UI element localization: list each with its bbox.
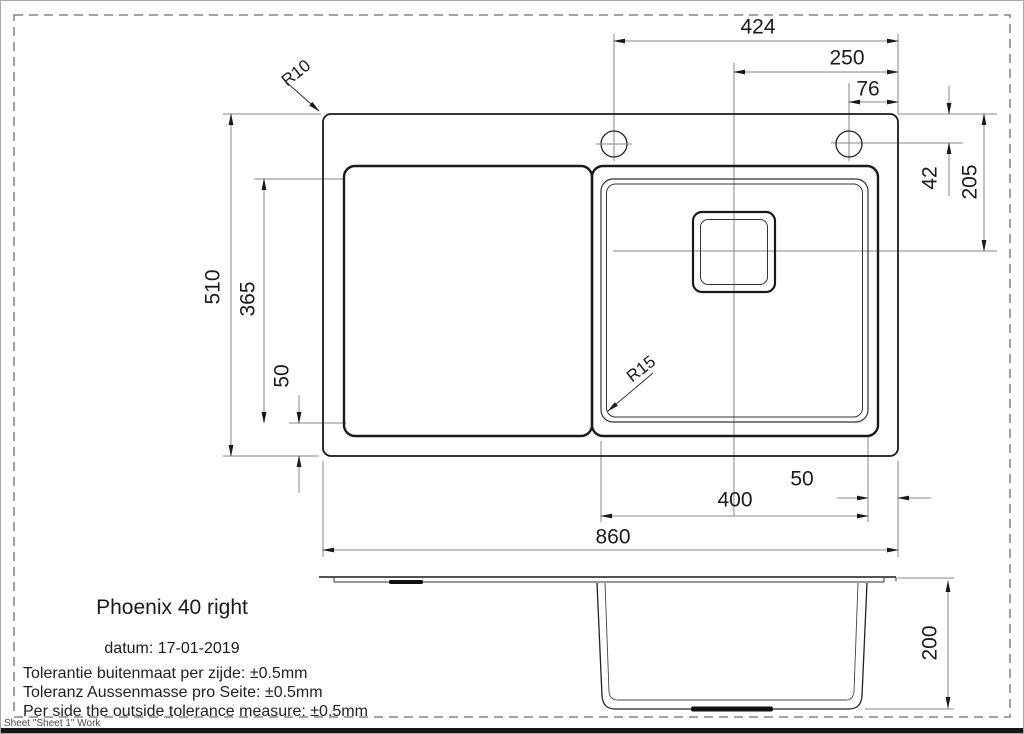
dim-bowl-center-from-right: 250 bbox=[829, 48, 864, 69]
dim-hole-from-right-edge: 76 bbox=[856, 79, 879, 100]
top-view bbox=[323, 114, 898, 456]
tolerance-line-nl: Tolerantie buitenmaat per zijde: ±0.5mm bbox=[23, 665, 307, 683]
dim-bowl-length: 365 bbox=[238, 281, 259, 316]
side-clip-mark bbox=[389, 580, 423, 584]
product-name: Phoenix 40 right bbox=[96, 596, 248, 620]
dim-hole-span: 424 bbox=[740, 17, 775, 38]
dim-bowl-width: 400 bbox=[717, 490, 752, 511]
side-drain-mark bbox=[691, 707, 773, 712]
bowl-section-outline bbox=[592, 166, 878, 436]
side-bowl-inner bbox=[605, 583, 858, 700]
side-bowl-outer bbox=[597, 583, 867, 709]
dim-bowl-center-from-top: 205 bbox=[960, 164, 981, 199]
dim-bowl-from-right-edge: 50 bbox=[790, 469, 813, 490]
dim-hole-center-from-top: 42 bbox=[920, 166, 941, 189]
extension-lines bbox=[223, 34, 997, 709]
drawing-page: 424 250 76 510 365 50 42 205 400 50 860 … bbox=[0, 0, 1024, 734]
tolerance-line-de: Toleranz Aussenmasse pro Seite: ±0.5mm bbox=[23, 684, 323, 702]
drainboard-outline bbox=[344, 166, 592, 436]
technical-drawing-canvas bbox=[1, 1, 1024, 734]
dim-overall-depth: 510 bbox=[203, 269, 224, 304]
date-line: datum: 17-01-2019 bbox=[104, 640, 239, 658]
dim-overall-width: 860 bbox=[595, 527, 630, 548]
radius-leaders bbox=[285, 81, 653, 411]
status-bar: Sheet "Sheet 1" Work bbox=[4, 718, 100, 728]
window-bottom-edge bbox=[1, 728, 1024, 734]
dim-bowl-bottom-offset: 50 bbox=[272, 364, 293, 387]
dim-bowl-depth: 200 bbox=[920, 625, 941, 660]
side-view bbox=[319, 577, 896, 712]
